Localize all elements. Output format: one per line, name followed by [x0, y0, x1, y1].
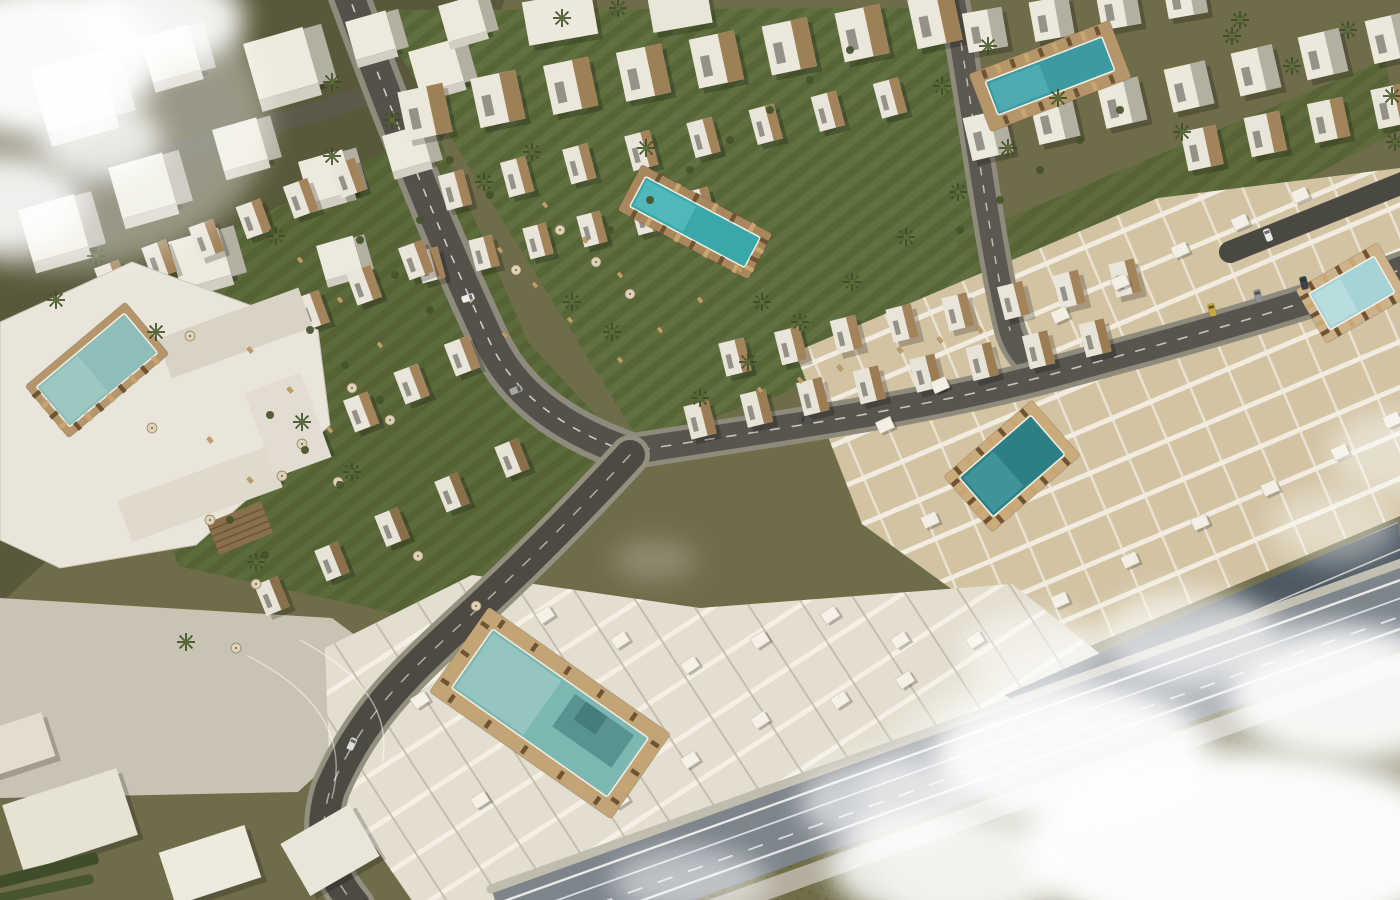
palm-crown: [609, 329, 614, 334]
palm-crown: [529, 149, 534, 154]
shrub: [391, 271, 399, 279]
palm-crown: [615, 5, 620, 10]
palm-crown: [389, 117, 394, 122]
shrub: [306, 326, 314, 334]
palm-crown: [1005, 145, 1010, 150]
shrub: [301, 446, 309, 454]
palm-tree: [739, 353, 757, 371]
palm-crown: [1229, 33, 1234, 38]
shrub: [266, 411, 274, 419]
palm-crown: [1237, 17, 1242, 22]
cloud: [613, 540, 697, 580]
palm-crown: [985, 43, 990, 48]
aerial-3d-render: [0, 0, 1400, 900]
cloud: [1270, 488, 1398, 564]
palm-tree: [523, 143, 541, 161]
palm-crown: [329, 153, 334, 158]
umbrella-pole: [209, 519, 211, 521]
patio-umbrella: [625, 289, 635, 299]
palm-crown: [1289, 63, 1294, 68]
palm-tree: [323, 147, 341, 165]
patio-umbrella: [185, 331, 195, 341]
umbrella-pole: [189, 335, 191, 337]
palm-tree: [603, 323, 621, 341]
shrub: [336, 481, 344, 489]
palm-crown: [569, 299, 574, 304]
palm-crown: [481, 179, 486, 184]
palm-tree: [999, 139, 1017, 157]
umbrella-pole: [475, 605, 477, 607]
shrub: [766, 106, 774, 114]
shrub: [446, 156, 454, 164]
palm-tree: [267, 227, 285, 245]
palm-crown: [1389, 93, 1394, 98]
palm-tree: [343, 463, 361, 481]
shrub: [376, 396, 384, 404]
palm-tree: [791, 313, 809, 331]
palm-crown: [1392, 139, 1397, 144]
palm-crown: [329, 79, 334, 84]
shrub: [1036, 166, 1044, 174]
palm-tree: [293, 413, 311, 431]
palm-crown: [797, 319, 802, 324]
palm-tree: [247, 553, 265, 571]
umbrella-pole: [301, 443, 303, 445]
umbrella-pole: [351, 387, 353, 389]
shrub: [606, 226, 614, 234]
umbrella-pole: [559, 229, 561, 231]
palm-crown: [299, 419, 304, 424]
palm-tree: [323, 73, 341, 91]
palm-tree: [553, 9, 571, 27]
palm-crown: [939, 83, 944, 88]
palm-crown: [349, 469, 354, 474]
palm-crown: [903, 234, 908, 239]
palm-crown: [559, 15, 564, 20]
shrub: [846, 46, 854, 54]
palm-crown: [153, 329, 158, 334]
patio-umbrella: [205, 515, 215, 525]
shrub: [226, 516, 234, 524]
shrub: [996, 196, 1004, 204]
shrub: [426, 306, 434, 314]
shrub: [726, 136, 734, 144]
umbrella-pole: [255, 583, 257, 585]
palm-tree: [47, 291, 65, 309]
palm-tree: [637, 139, 655, 157]
umbrella-pole: [281, 475, 283, 477]
umbrella-pole: [629, 293, 631, 295]
umbrella-pole: [417, 555, 419, 557]
shrub: [356, 236, 364, 244]
palm-crown: [759, 299, 764, 304]
umbrella-pole: [151, 427, 153, 429]
shrub: [956, 226, 964, 234]
palm-crown: [1345, 27, 1350, 32]
patio-umbrella: [251, 579, 261, 589]
shrub: [341, 361, 349, 369]
palm-crown: [1055, 95, 1060, 100]
umbrella-pole: [235, 647, 237, 649]
palm-tree: [1339, 21, 1357, 39]
cloud: [1100, 588, 1276, 684]
palm-tree: [897, 228, 915, 246]
palm-crown: [273, 233, 278, 238]
palm-crown: [643, 145, 648, 150]
patio-umbrella: [591, 257, 601, 267]
shrub: [261, 551, 269, 559]
palm-crown: [745, 359, 750, 364]
patio-umbrella: [511, 265, 521, 275]
palm-tree: [933, 77, 951, 95]
shrub: [1116, 106, 1124, 114]
palm-tree: [563, 293, 581, 311]
umbrella-pole: [515, 269, 517, 271]
palm-crown: [53, 297, 58, 302]
palm-tree: [979, 37, 997, 55]
cloud: [960, 610, 1104, 690]
palm-tree: [691, 389, 709, 407]
palm-tree: [475, 173, 493, 191]
palm-crown: [697, 395, 702, 400]
cloud: [38, 100, 162, 180]
shrub: [1076, 136, 1084, 144]
palm-tree: [1283, 57, 1301, 75]
patio-umbrella: [277, 471, 287, 481]
palm-tree: [949, 183, 967, 201]
palm-tree: [1049, 89, 1067, 107]
render-canvas: [0, 0, 1400, 900]
shrub: [806, 76, 814, 84]
palm-crown: [183, 639, 188, 644]
palm-crown: [1179, 129, 1184, 134]
palm-crown: [955, 189, 960, 194]
palm-tree: [1231, 11, 1249, 29]
patio-umbrella: [471, 601, 481, 611]
patio-umbrella: [347, 383, 357, 393]
palm-tree: [147, 323, 165, 341]
shrub: [486, 191, 494, 199]
palm-tree: [1173, 123, 1191, 141]
umbrella-pole: [595, 261, 597, 263]
palm-tree: [177, 633, 195, 651]
patio-umbrella: [555, 225, 565, 235]
umbrella-pole: [389, 419, 391, 421]
patio-umbrella: [385, 415, 395, 425]
shrub: [686, 166, 694, 174]
patio-umbrella: [413, 551, 423, 561]
palm-tree: [843, 273, 861, 291]
palm-tree: [1223, 27, 1241, 45]
palm-crown: [253, 559, 258, 564]
palm-crown: [849, 279, 854, 284]
palm-tree: [383, 111, 401, 129]
patio-umbrella: [147, 423, 157, 433]
patio-umbrella: [231, 643, 241, 653]
palm-tree: [753, 293, 771, 311]
shrub: [416, 216, 424, 224]
shrub: [646, 196, 654, 204]
